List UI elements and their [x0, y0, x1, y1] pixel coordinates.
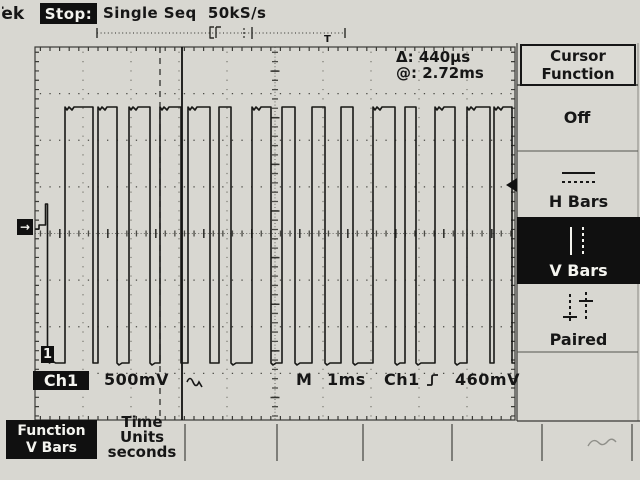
menu-item-v-bars[interactable]: V Bars: [517, 217, 640, 284]
rising-edge-icon: [424, 371, 442, 389]
timebase-readout: 1ms: [327, 370, 366, 389]
channel-scale-readout: 500mV: [104, 370, 169, 389]
at-value: 2.72ms: [422, 64, 484, 82]
trigger-source-readout: Ch1: [384, 370, 420, 389]
menu-item-off[interactable]: Off: [518, 108, 636, 127]
timebase-m-label: M: [296, 370, 312, 389]
channel-1-badge: Ch1: [33, 371, 89, 390]
time-units-button[interactable]: TimeUnitsseconds: [99, 415, 185, 463]
pencil-smudge: [588, 439, 616, 446]
ground-position-marker: →: [17, 219, 33, 235]
cursor-readout: Δ: 440µs@: 2.72ms: [396, 49, 484, 81]
menu-item-paired[interactable]: Paired: [517, 284, 640, 352]
acquisition-mode-readout: Single Seq 50kS/s: [103, 4, 266, 22]
channel-1-marker: 1: [41, 346, 54, 363]
trigger-level-readout: 460mV: [455, 370, 520, 389]
oscilloscope-screen: { "colors":{"screen_bg":"#d8d7d1","ink":…: [0, 0, 640, 480]
menu-title: CursorFunction: [520, 44, 636, 86]
acquisition-state-badge: Stop:: [40, 3, 97, 24]
tek-logo: Tek: [2, 4, 38, 25]
ac-coupling-icon: [186, 375, 204, 391]
function-button[interactable]: FunctionV Bars: [6, 420, 97, 459]
menu-item-h-bars[interactable]: H Bars: [517, 151, 640, 217]
record-window-left-bracket: [210, 27, 214, 38]
trigger-position-marker: T: [324, 34, 331, 45]
